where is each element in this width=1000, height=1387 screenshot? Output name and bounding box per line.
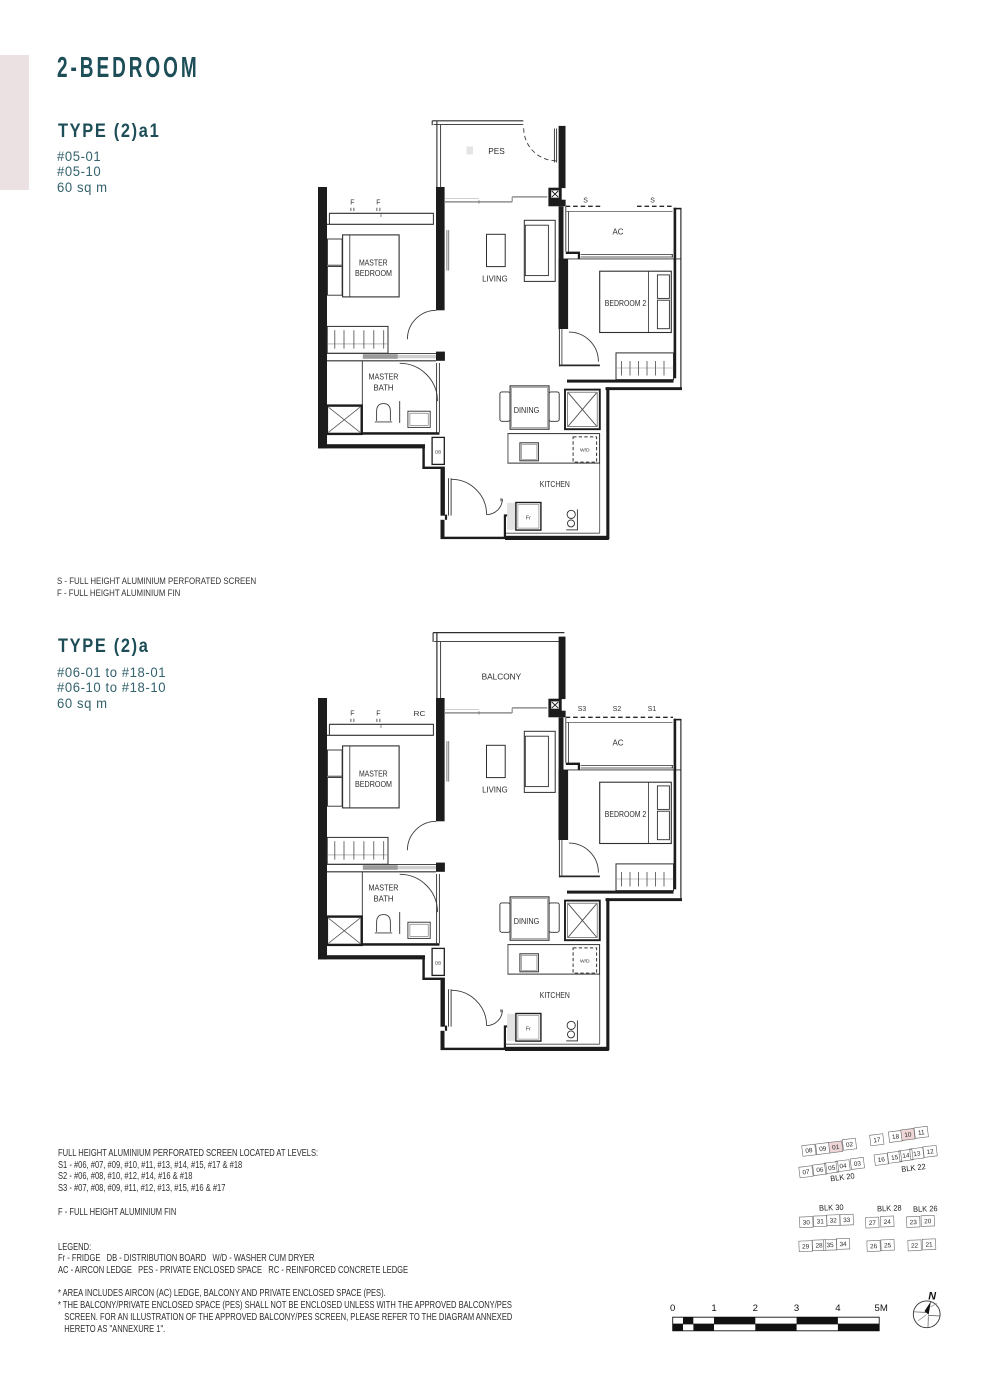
svg-text:F: F [376,199,380,206]
svg-text:DINING: DINING [514,917,540,926]
svg-text:10: 10 [904,1131,912,1139]
svg-text:KITCHEN: KITCHEN [540,480,570,489]
svg-text:PES: PES [488,146,505,156]
svg-text:33: 33 [843,1217,851,1224]
svg-text:3: 3 [794,1303,799,1314]
svg-text:BEDROOM: BEDROOM [355,269,392,278]
svg-text:BLK 20: BLK 20 [830,1171,856,1183]
svg-text:W/D: W/D [580,448,590,454]
svg-text:W/D: W/D [580,959,590,965]
svg-text:23: 23 [910,1219,918,1226]
svg-text:28: 28 [815,1242,823,1249]
svg-text:S: S [583,197,588,204]
svg-text:LIVING: LIVING [482,274,508,283]
svg-text:25: 25 [884,1242,892,1249]
svg-text:BLK 30: BLK 30 [819,1203,844,1213]
svg-text:RC: RC [414,711,426,718]
svg-text:01: 01 [832,1144,840,1152]
svg-text:14: 14 [902,1152,910,1160]
svg-text:18: 18 [892,1133,900,1141]
svg-text:35: 35 [826,1242,834,1249]
svg-text:S3: S3 [578,706,587,713]
svg-text:DB: DB [435,960,441,965]
svg-text:BEDROOM: BEDROOM [355,780,392,789]
svg-text:15: 15 [891,1154,899,1162]
svg-text:04: 04 [839,1163,847,1171]
svg-text:BLK 22: BLK 22 [901,1162,926,1174]
svg-text:07: 07 [802,1169,810,1177]
svg-text:AC: AC [613,227,624,236]
svg-text:08: 08 [805,1147,813,1155]
svg-text:DINING: DINING [514,406,540,415]
svg-text:06: 06 [816,1166,824,1174]
svg-text:Fr: Fr [526,1027,531,1033]
svg-text:Fr: Fr [526,516,531,522]
svg-text:F: F [376,710,380,717]
svg-text:S1: S1 [648,706,657,713]
svg-text:BATH: BATH [374,383,394,392]
svg-text:S2: S2 [613,706,622,713]
svg-text:MASTER: MASTER [359,258,388,267]
svg-text:KITCHEN: KITCHEN [540,991,570,1000]
svg-text:34: 34 [839,1241,847,1248]
svg-text:MASTER: MASTER [369,884,399,893]
svg-text:DB: DB [435,449,441,454]
svg-text:AC: AC [613,738,624,747]
svg-text:LIVING: LIVING [482,785,508,794]
svg-text:5M: 5M [875,1303,888,1314]
svg-text:BEDROOM 2: BEDROOM 2 [605,810,647,819]
svg-text:16: 16 [877,1156,885,1164]
svg-text:4: 4 [835,1303,841,1314]
svg-text:13: 13 [913,1150,921,1158]
svg-text:BLK 26: BLK 26 [913,1204,938,1214]
svg-text:N: N [928,1291,936,1303]
svg-text:21: 21 [925,1242,933,1249]
svg-text:03: 03 [853,1160,861,1168]
svg-text:MASTER: MASTER [369,373,399,382]
svg-text:32: 32 [830,1217,838,1224]
svg-text:26: 26 [870,1243,878,1250]
svg-text:BALCONY: BALCONY [482,672,522,682]
svg-text:17: 17 [873,1137,881,1145]
svg-text:31: 31 [817,1218,825,1225]
svg-text:BATH: BATH [374,894,394,903]
svg-text:30: 30 [803,1219,811,1226]
svg-text:MASTER: MASTER [359,769,388,778]
svg-text:2: 2 [753,1303,758,1314]
svg-text:BLK 28: BLK 28 [877,1203,902,1213]
svg-text:02: 02 [846,1141,854,1149]
svg-text:F: F [350,710,354,717]
svg-text:BEDROOM 2: BEDROOM 2 [605,299,647,308]
svg-text:11: 11 [918,1129,926,1137]
svg-text:27: 27 [869,1220,877,1227]
svg-text:05: 05 [828,1164,836,1172]
svg-text:24: 24 [884,1219,892,1226]
svg-text:0: 0 [670,1303,675,1314]
svg-text:S: S [650,197,655,204]
svg-text:1: 1 [711,1303,716,1314]
svg-text:29: 29 [802,1243,810,1250]
svg-text:12: 12 [926,1148,934,1156]
svg-text:20: 20 [924,1218,932,1225]
svg-text:F: F [350,199,354,206]
svg-text:09: 09 [819,1145,827,1153]
svg-text:22: 22 [911,1243,919,1250]
